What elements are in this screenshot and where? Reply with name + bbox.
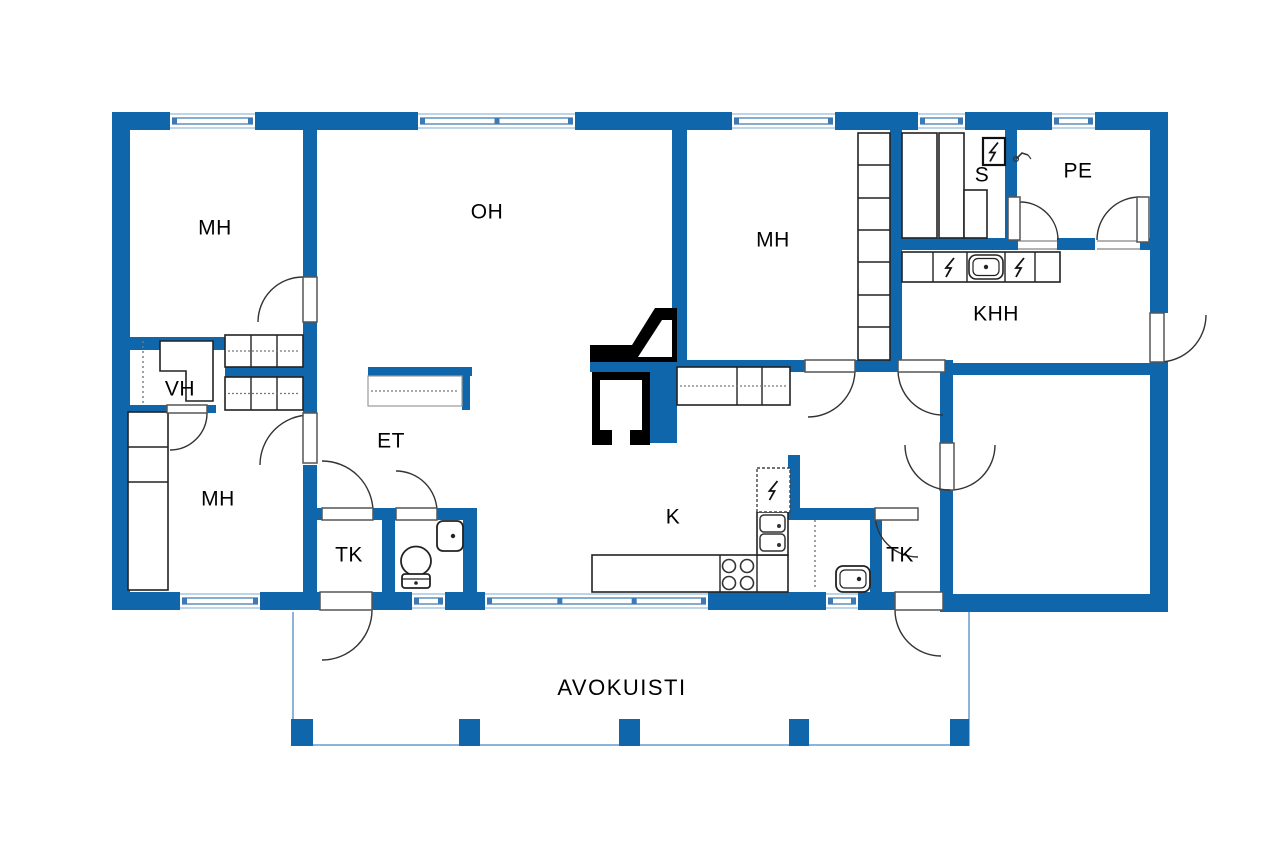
wall [373,508,396,520]
wall [943,594,1168,612]
porch-pillar [291,719,313,746]
floor-plan-page: MHOHMHSPEKHHVHETMHTKKTKAVOKUISTI [0,0,1280,847]
window-mullion [734,118,739,124]
wc-toilet [401,547,431,576]
window-mullion [958,118,963,124]
wall [303,322,317,413]
fireplace-hearth-opening [612,430,630,445]
window-mullion [920,118,925,124]
window-mullion [828,118,833,124]
entry-door-east-leaf [1150,313,1164,362]
sauna-step [964,190,987,238]
wall [590,362,650,372]
wall [890,130,902,363]
window-mullion [828,598,833,604]
sauna-bench-1 [902,133,937,238]
sauna-door-leaf [1008,197,1020,240]
tk-e-door-leaf [875,508,918,520]
bigroom-door-leaf [940,443,954,490]
window-mullion [438,598,443,604]
window-mullion [557,598,562,604]
fridge [757,468,790,512]
wall [940,363,953,443]
porch-pillar [459,719,480,746]
toilet-base [402,574,430,588]
window-mullion [182,598,187,604]
mh-nw-door-leaf [303,277,317,322]
room-label-oh: OH [471,201,504,224]
wall [303,130,317,277]
drain-icon [777,543,781,547]
wall [870,520,882,592]
room-label-pe: PE [1063,160,1092,183]
window-mullion [568,118,573,124]
room-label-mh-n: MH [756,229,790,252]
wall [902,238,1018,250]
window-mullion [1088,118,1093,124]
wc-washbasin [437,521,463,551]
wc-door-leaf [396,508,437,520]
room-label-k: K [666,506,681,529]
porch-door-west-leaf [320,592,372,610]
porch-pillar [789,719,809,746]
window-mullion [420,118,425,124]
window-mullion [701,598,706,604]
drain-icon [984,265,988,269]
wall [1150,130,1168,313]
vh-door-leaf [167,405,207,413]
wall [650,362,677,443]
wall [1057,238,1095,250]
drain-icon [777,524,781,528]
wall [225,367,303,377]
mh-n-door-leaf [805,360,855,372]
window-mullion [487,598,492,604]
room-label-et: ET [377,430,405,453]
window-mullion [851,598,856,604]
wall [785,508,875,520]
kitchen-counter [592,555,788,592]
floor-plan-svg: MHOHMHSPEKHHVHETMHTKKTKAVOKUISTI [0,0,1280,847]
porch-pillar [950,719,969,746]
room-label-avokuisti: AVOKUISTI [557,675,686,700]
room-label-s: S [975,164,990,187]
room-label-mh-sw: MH [201,488,235,511]
drain-icon [451,534,455,538]
room-label-tk-e: TK [886,544,914,567]
drain-icon [857,577,861,581]
wall [855,360,900,372]
window-mullion [253,598,258,604]
khh-hall-door-leaf [898,360,945,372]
wall [112,112,1168,130]
room-label-vh: VH [165,378,195,401]
porch-door-east-leaf [895,592,943,610]
window-mullion [632,598,637,604]
window-mullion [495,118,500,124]
wall [953,363,1162,375]
room-label-khh: KHH [973,303,1019,326]
sauna-stove [983,138,1005,165]
wall [463,510,477,592]
fireplace-box-inner [600,380,642,430]
wall [382,510,395,592]
room-label-tk-w: TK [335,544,363,567]
tk-w-door-leaf [322,508,373,520]
mh-sw-door-leaf [303,413,317,463]
window-mullion [1054,118,1059,124]
porch-pillar [619,719,640,746]
closet-col-mh-sw [128,412,168,590]
closet-col-mh-n [858,133,890,360]
wall [1150,362,1168,612]
window-mullion [172,118,177,124]
sauna-bench-2 [939,133,964,238]
wall [462,376,470,410]
window-mullion [414,598,419,604]
wall [303,465,317,592]
window-mullion [248,118,253,124]
pe-door-leaf [1137,197,1149,242]
wall [368,367,472,376]
room-label-mh-nw: MH [198,217,232,240]
wall [437,508,477,520]
